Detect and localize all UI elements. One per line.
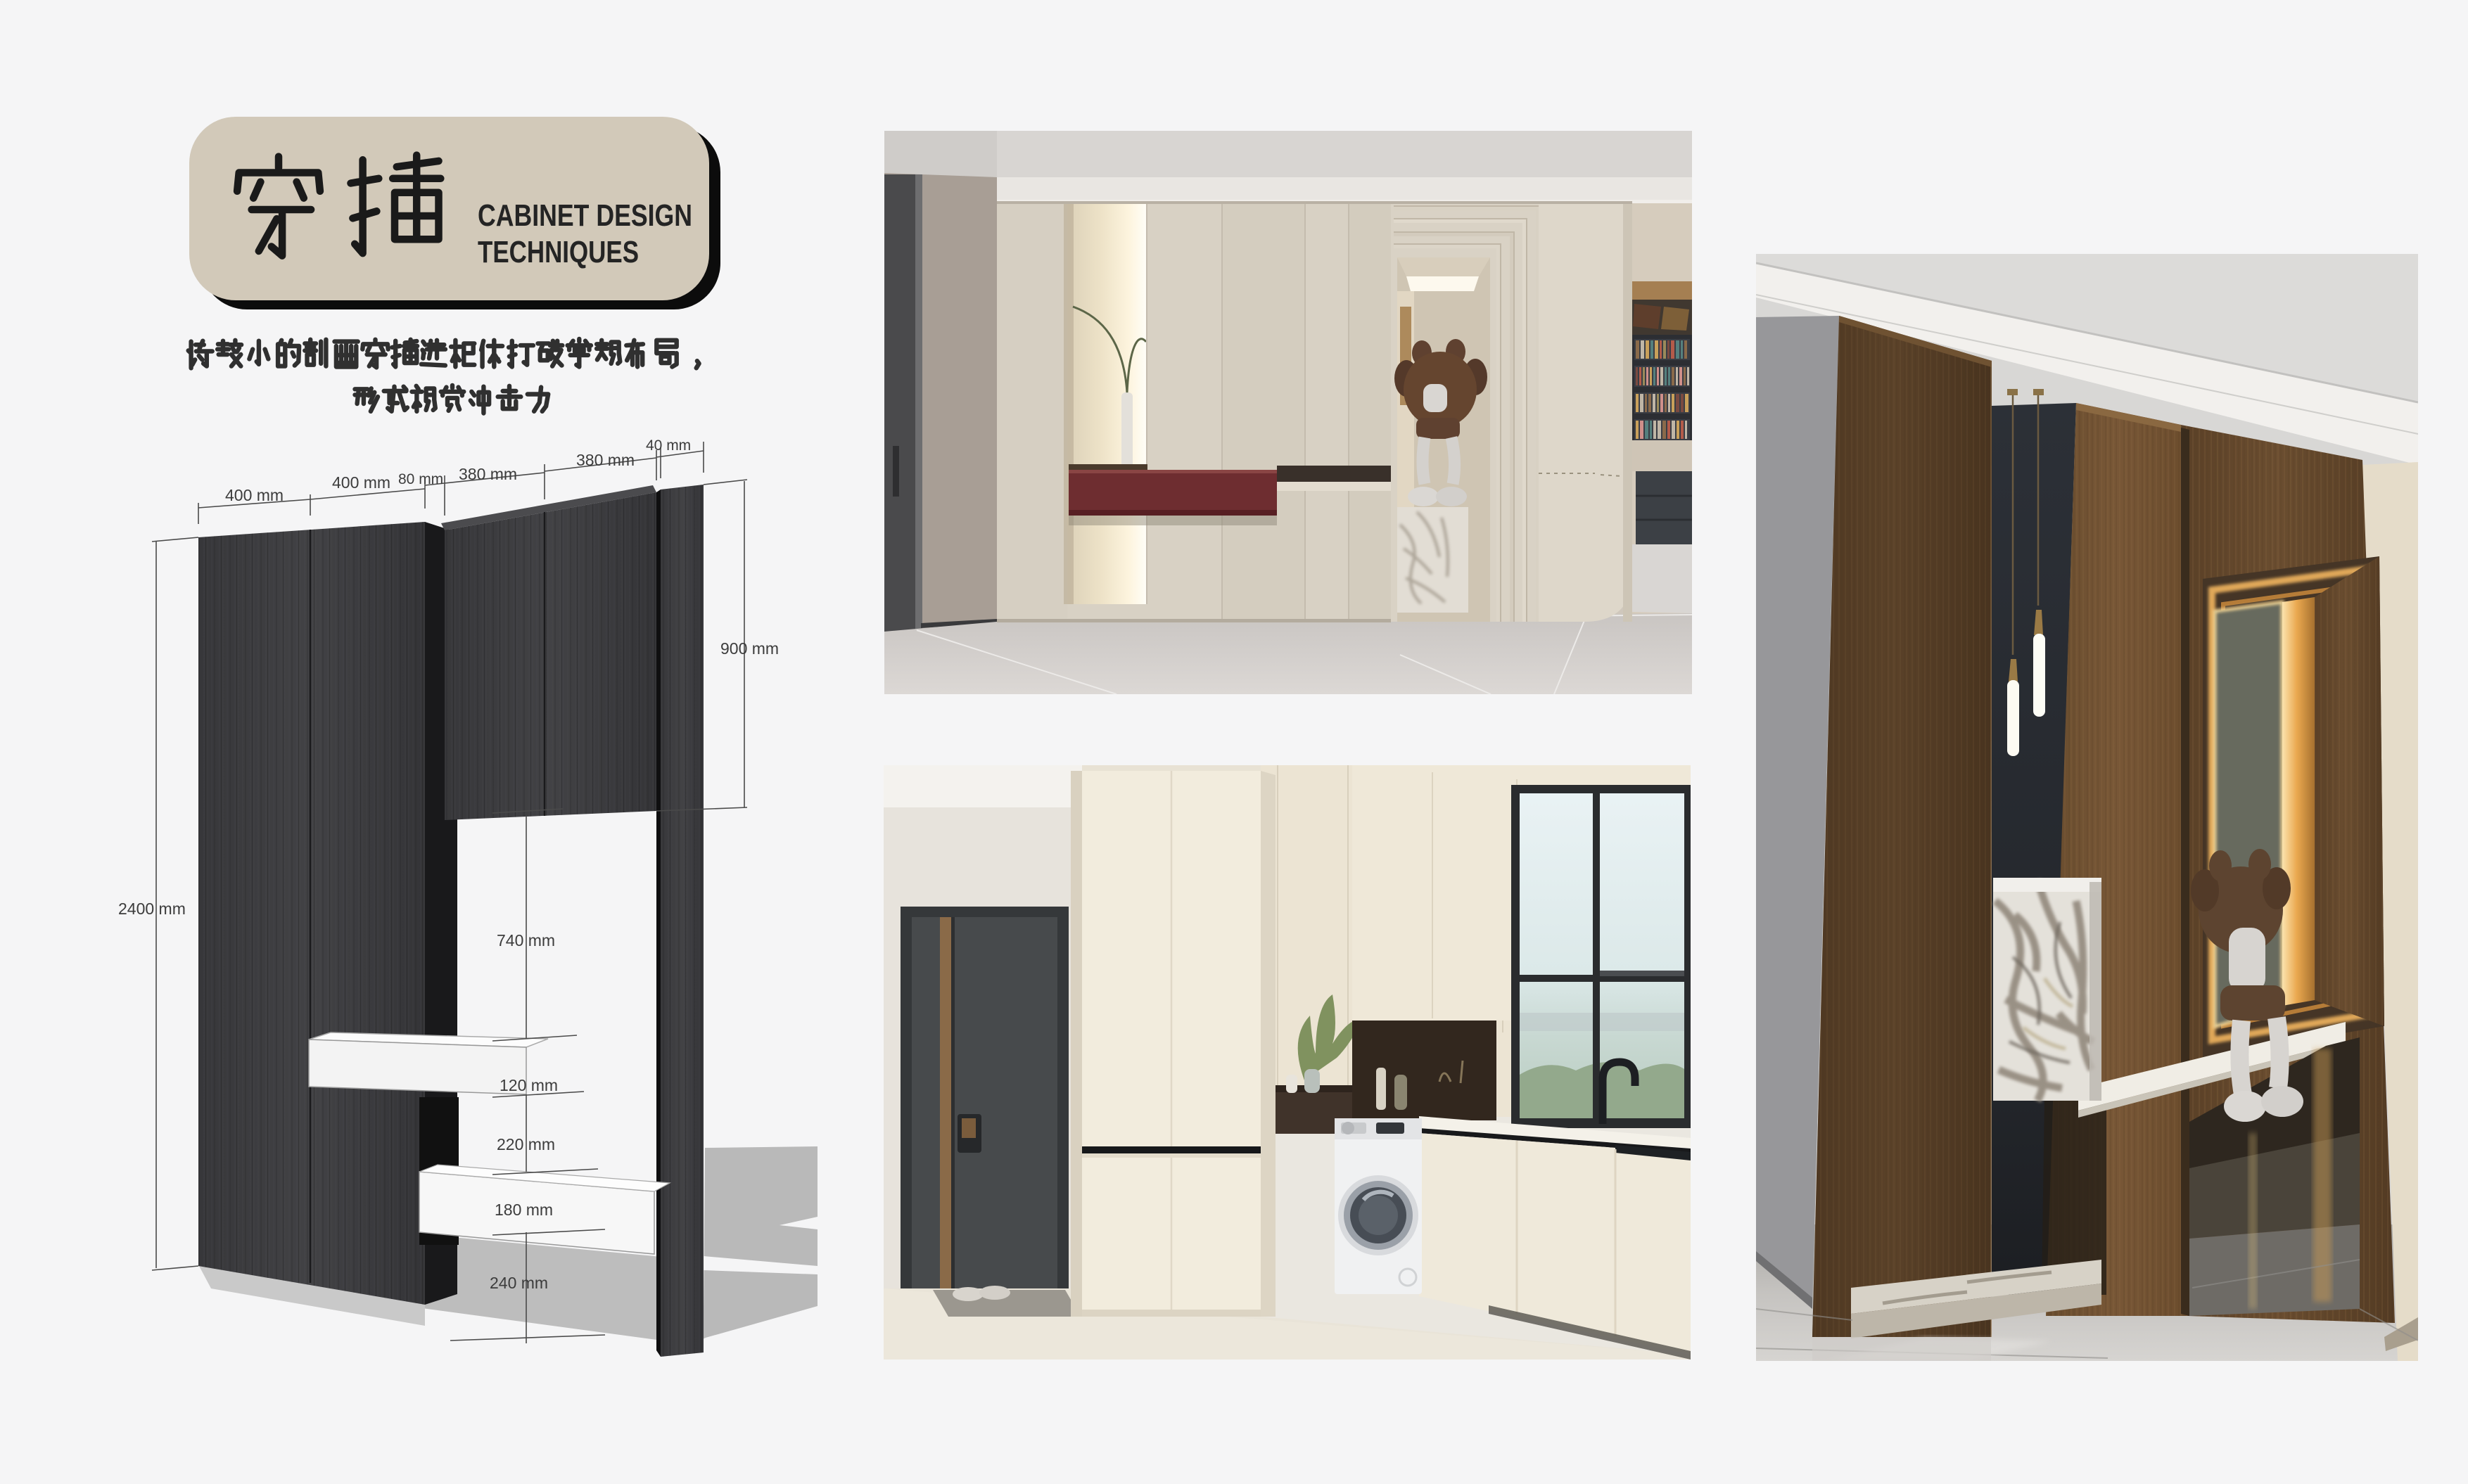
svg-text:400 mm: 400 mm: [332, 473, 390, 492]
svg-text:40 mm: 40 mm: [646, 437, 691, 454]
svg-text:120 mm: 120 mm: [500, 1076, 558, 1094]
svg-text:2400 mm: 2400 mm: [118, 900, 186, 918]
svg-text:740 mm: 740 mm: [497, 931, 555, 949]
svg-text:180 mm: 180 mm: [495, 1201, 553, 1219]
svg-text:900 mm: 900 mm: [720, 639, 779, 658]
svg-text:TECHNIQUES: TECHNIQUES: [478, 235, 639, 269]
svg-text:380 mm: 380 mm: [576, 451, 635, 469]
svg-text:240 mm: 240 mm: [490, 1274, 548, 1292]
svg-text:CABINET DESIGN: CABINET DESIGN: [478, 198, 692, 233]
svg-text:380 mm: 380 mm: [459, 465, 517, 483]
svg-text:80 mm: 80 mm: [398, 471, 443, 487]
svg-text:400 mm: 400 mm: [225, 486, 284, 504]
svg-text:220 mm: 220 mm: [497, 1135, 555, 1153]
